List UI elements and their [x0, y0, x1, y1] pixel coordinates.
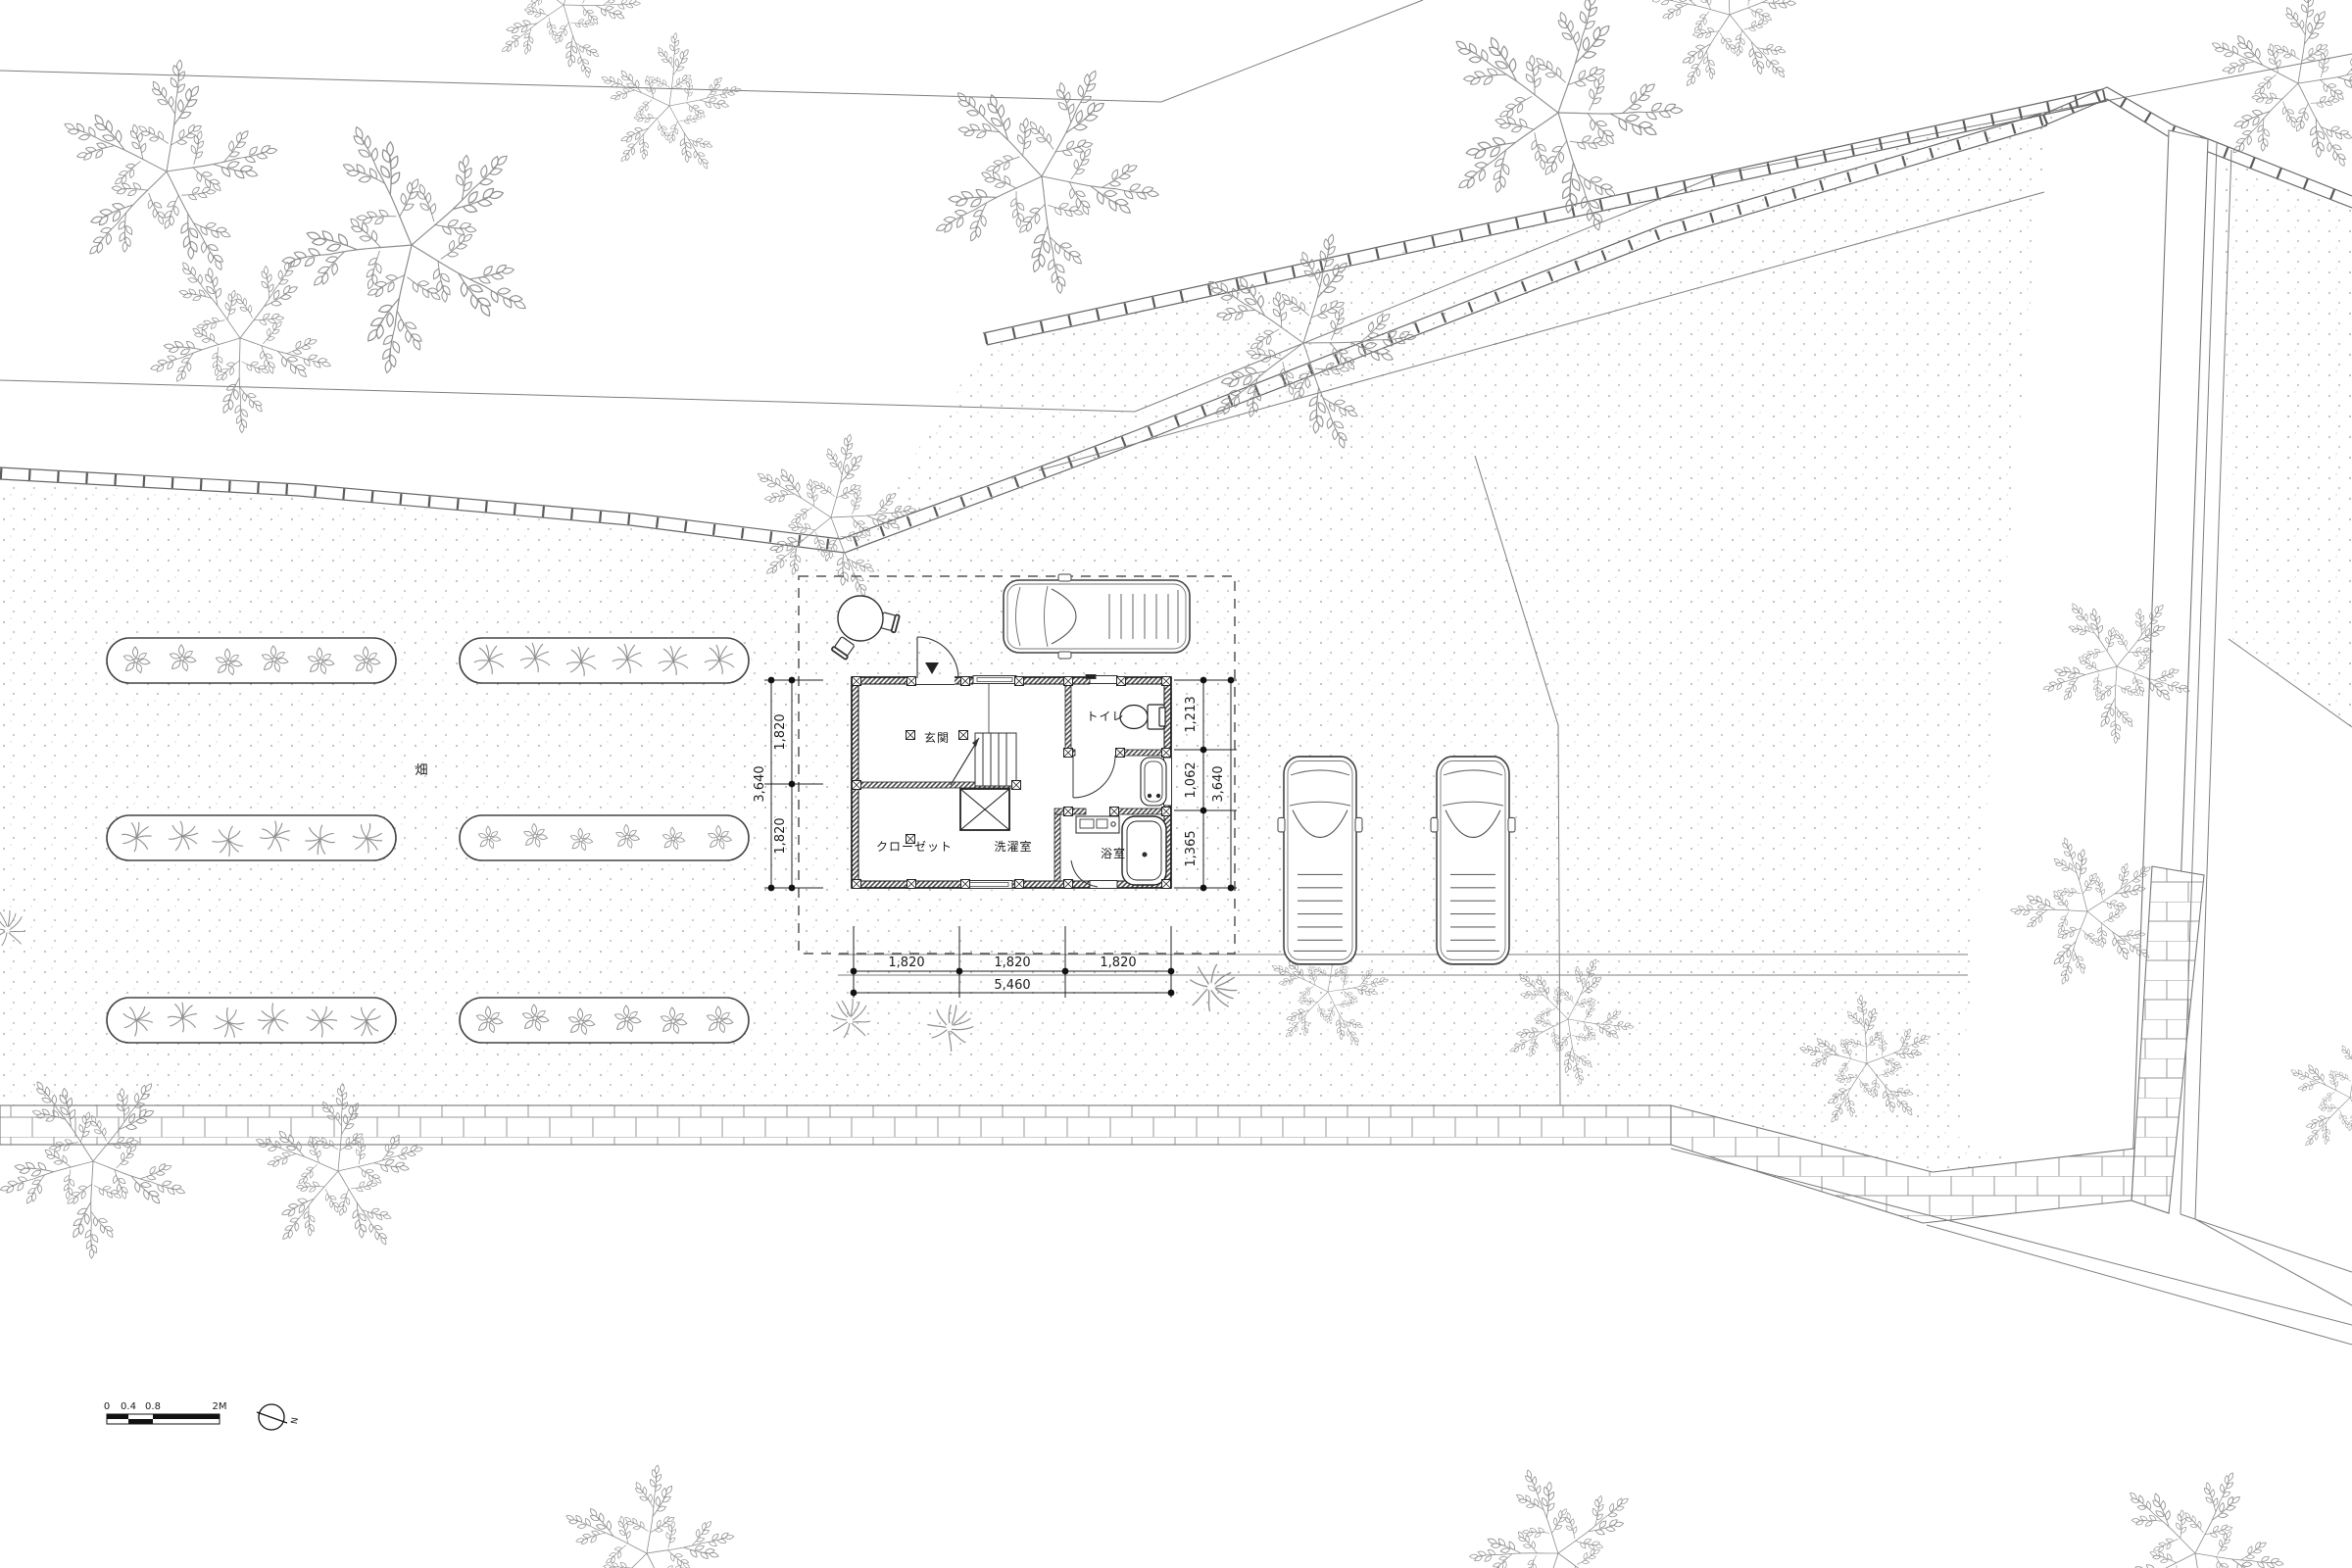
tree [573, 9, 765, 205]
window-top-toilet [1086, 674, 1117, 685]
north-arrow: N [257, 1404, 298, 1430]
north-label: N [287, 1416, 298, 1424]
room-label-bath: 浴室 [1101, 846, 1126, 860]
dim-label: 1,820 [994, 955, 1030, 970]
car-parked-1 [1278, 757, 1362, 964]
dim-label: 1,820 [773, 817, 788, 854]
room-label-toilet: トイレ [1086, 710, 1124, 723]
floor-hatch-box [960, 789, 1009, 830]
vanity [1141, 758, 1166, 806]
site-plan-canvas: 畑 [0, 0, 2352, 1568]
dim-label: 1,820 [773, 713, 788, 750]
upper-terrain-area [2225, 159, 2352, 727]
dim-label: 1,820 [888, 955, 924, 970]
dim-label: 1,820 [1100, 955, 1136, 970]
tree [885, 23, 1200, 332]
field-label: 畑 [415, 763, 427, 778]
window-bottom-laundry [963, 879, 1012, 890]
window-top-stairs [973, 674, 1016, 685]
tree [2105, 1461, 2284, 1568]
site-plan-drawing: 畑 [0, 0, 2352, 1568]
bathtub [1122, 816, 1166, 885]
dim-label: 5,460 [994, 978, 1030, 993]
entrance-opening [913, 676, 955, 686]
washer-counter [1076, 816, 1119, 833]
car-top [1004, 574, 1190, 659]
room-label-laundry: 洗濯室 [994, 839, 1032, 854]
toilet-fixture [1120, 705, 1165, 729]
tree [222, 58, 601, 435]
tree [2282, 1033, 2352, 1164]
tree [1429, 1425, 1688, 1568]
tree [1613, 0, 1845, 133]
tree [555, 1464, 741, 1568]
tree [50, 59, 286, 286]
car-parked-2 [1431, 757, 1515, 964]
scale-label: 0.4 [121, 1401, 136, 1412]
tree [471, 0, 658, 96]
room-label-entrance: 玄関 [924, 730, 950, 745]
tree [2200, 0, 2352, 179]
scale-label: 2M [213, 1401, 227, 1412]
scale-bar: 0 0.4 0.8 2M [104, 1401, 227, 1424]
dim-label: 3,640 [753, 765, 767, 802]
scale-label: 0.8 [145, 1401, 161, 1412]
dim-label: 1,213 [1184, 696, 1199, 732]
tree [127, 224, 351, 454]
scale-label: 0 [104, 1401, 110, 1412]
room-label-closet: クローゼット [876, 840, 953, 854]
dim-label: 1,365 [1184, 830, 1199, 866]
window-bottom-bath [1090, 879, 1117, 890]
dim-label: 3,640 [1211, 765, 1226, 802]
dim-label: 1,062 [1184, 761, 1199, 798]
